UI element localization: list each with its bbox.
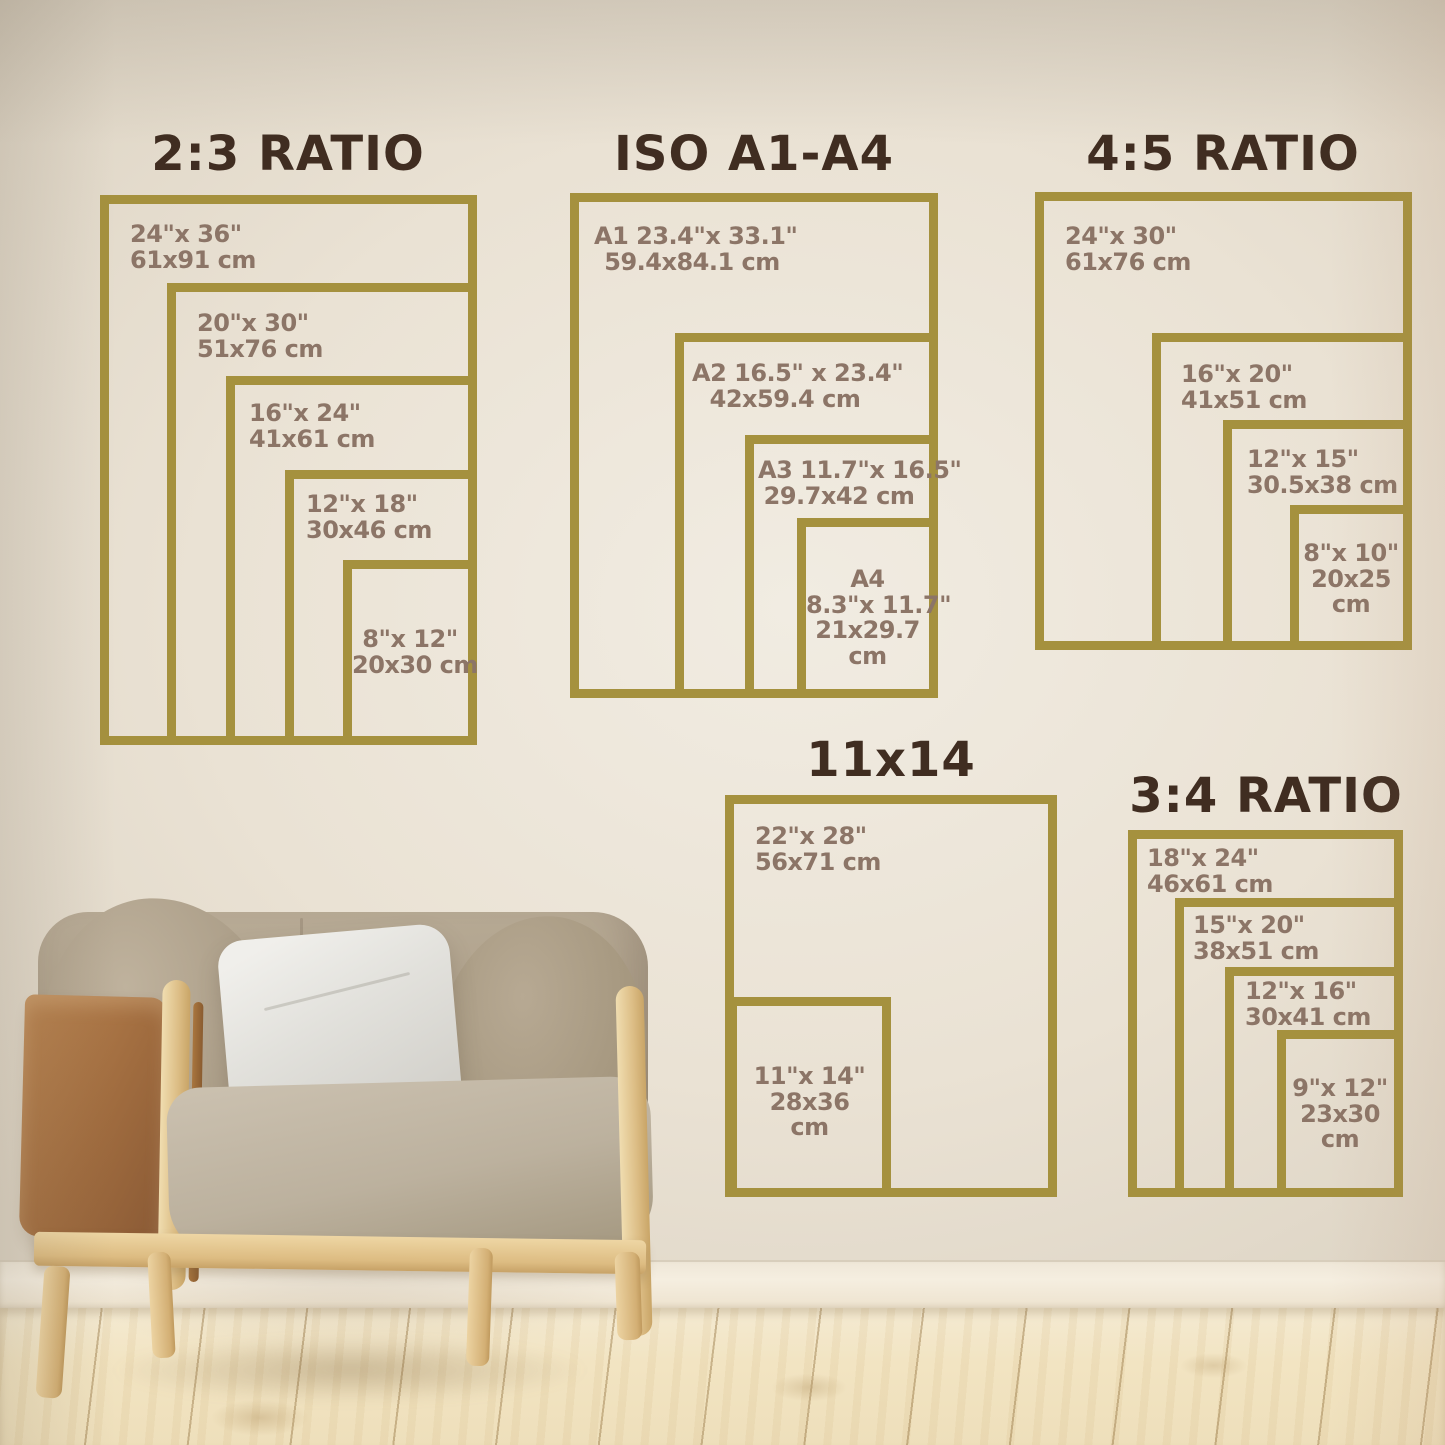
size-label: 8"x 12" 20x30 cm	[352, 627, 468, 678]
size-label-line: 12"x 18"	[306, 492, 432, 518]
size-label-line: 15"x 20"	[1193, 913, 1319, 939]
group-title: 4:5 RATIO	[1023, 130, 1423, 178]
size-label: 15"x 20" 38x51 cm	[1193, 913, 1319, 964]
size-label: 16"x 24" 41x61 cm	[249, 401, 375, 452]
size-label: A3 11.7"x 16.5" 29.7x42 cm	[758, 458, 920, 509]
size-label-line: 18"x 24"	[1147, 846, 1273, 872]
size-label-line: 23x30	[1286, 1102, 1394, 1128]
size-label-line: A3 11.7"x 16.5"	[758, 458, 920, 484]
size-label-line: cm	[1286, 1127, 1394, 1153]
size-label-line: 24"x 36"	[130, 222, 256, 248]
size-label: A1 23.4"x 33.1" 59.4x84.1 cm	[594, 224, 790, 275]
size-label: 12"x 16" 30x41 cm	[1245, 979, 1371, 1030]
group-title: 2:3 RATIO	[88, 130, 488, 178]
size-label: A2 16.5" x 23.4" 42x59.4 cm	[692, 361, 878, 412]
size-label-line: 8"x 12"	[352, 627, 468, 653]
size-label-line: 20x30 cm	[352, 653, 468, 679]
size-label-line: 16"x 20"	[1181, 362, 1307, 388]
size-label-line: cm	[806, 644, 929, 670]
size-label-line: 51x76 cm	[197, 337, 323, 363]
size-label: 18"x 24" 46x61 cm	[1147, 846, 1273, 897]
size-label-line: 12"x 16"	[1245, 979, 1371, 1005]
chair-seat-cushion	[166, 1076, 654, 1257]
chair-leg	[466, 1248, 493, 1367]
size-label-line: 24"x 30"	[1065, 224, 1191, 250]
size-label-line: 29.7x42 cm	[758, 484, 920, 510]
size-label-line: cm	[1299, 592, 1403, 618]
size-label-line: 30.5x38 cm	[1247, 473, 1398, 499]
size-label-line: 41x61 cm	[249, 427, 375, 453]
leather-side-panel	[19, 994, 167, 1240]
size-label-line: 20"x 30"	[197, 311, 323, 337]
group-title: 3:4 RATIO	[1066, 772, 1445, 820]
group-title: 11x14	[691, 736, 1091, 784]
size-label-line: 20x25	[1299, 567, 1403, 593]
size-label-line: 56x71 cm	[755, 850, 881, 876]
size-label-line: 30x41 cm	[1245, 1005, 1371, 1031]
room-scene: 2:3 RATIO 24"x 36" 61x91 cm 20"x 30" 51x…	[0, 0, 1445, 1445]
size-label-line: 9"x 12"	[1286, 1076, 1394, 1102]
size-label: 12"x 18" 30x46 cm	[306, 492, 432, 543]
size-label-line: 8"x 10"	[1299, 541, 1403, 567]
size-label-line: 11"x 14"	[737, 1064, 882, 1090]
size-label: 8"x 10" 20x25 cm	[1299, 541, 1403, 618]
size-label: 12"x 15" 30.5x38 cm	[1247, 447, 1398, 498]
size-label-line: A2 16.5" x 23.4"	[692, 361, 878, 387]
size-label-line: A4	[806, 567, 929, 593]
size-label-line: 21x29.7	[806, 618, 929, 644]
size-label: 22"x 28" 56x71 cm	[755, 824, 881, 875]
size-label-line: 30x46 cm	[306, 518, 432, 544]
size-label: 24"x 36" 61x91 cm	[130, 222, 256, 273]
size-label-line: 61x76 cm	[1065, 250, 1191, 276]
size-label-line: 46x61 cm	[1147, 872, 1273, 898]
size-label-line: 12"x 15"	[1247, 447, 1398, 473]
size-label: A4 8.3"x 11.7" 21x29.7 cm	[806, 567, 929, 670]
size-label-line: 42x59.4 cm	[692, 387, 878, 413]
size-label: 24"x 30" 61x76 cm	[1065, 224, 1191, 275]
size-label: 16"x 20" 41x51 cm	[1181, 362, 1307, 413]
size-label-line: 16"x 24"	[249, 401, 375, 427]
size-label-line: 38x51 cm	[1193, 939, 1319, 965]
size-label-line: 41x51 cm	[1181, 388, 1307, 414]
chair-leg	[614, 1252, 642, 1341]
size-label-line: 22"x 28"	[755, 824, 881, 850]
size-label-line: A1 23.4"x 33.1"	[594, 224, 790, 250]
size-label-line: 59.4x84.1 cm	[594, 250, 790, 276]
group-title: ISO A1-A4	[554, 130, 954, 178]
size-label: 9"x 12" 23x30 cm	[1286, 1076, 1394, 1153]
size-label: 20"x 30" 51x76 cm	[197, 311, 323, 362]
size-label-line: 61x91 cm	[130, 248, 256, 274]
size-label-line: 8.3"x 11.7"	[806, 593, 929, 619]
chair-floor-shadow	[20, 1325, 680, 1415]
